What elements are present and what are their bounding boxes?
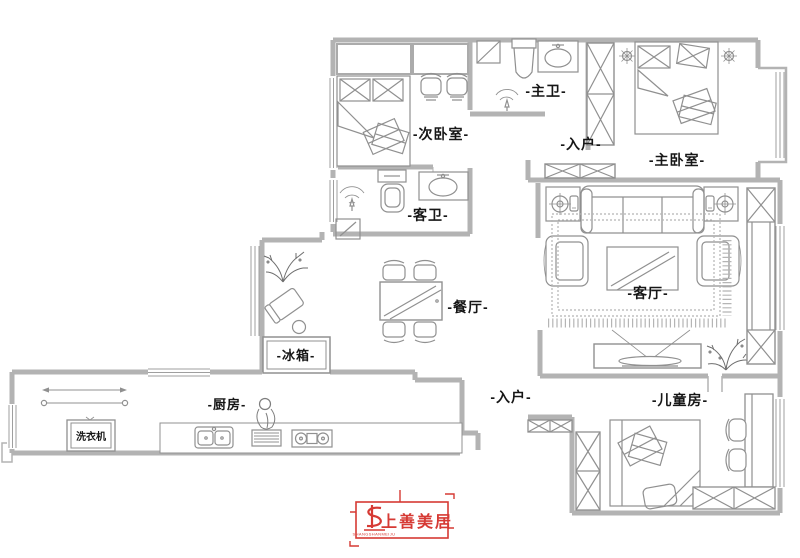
label-entry-upper: -入户- [560,136,601,152]
bedroom2-wardrobes [337,44,468,74]
label-guest-bath: -客卫- [407,207,448,223]
master-bed-icon [635,42,718,134]
sofa-icon [581,186,704,233]
label-washing-machine: 洗衣机 [76,430,106,443]
kids-desk-chairs [726,394,773,487]
logo-subtext: SHANGSHANMEIJU [353,532,396,537]
masterbath-shower-icon [496,89,518,111]
floor-plan-page: -次卧室- -主卫- -入户- -主卧室- -客卫- -餐厅- -客厅- -冰箱… [0,0,800,558]
label-master-bedroom: -主卧室- [649,152,705,168]
kids-bed-icon [610,420,700,510]
label-kitchen: -厨房- [208,397,247,412]
kids-bottom-cabinet [693,487,775,509]
furniture [41,39,775,510]
armchair-right-icon [697,236,741,286]
hall-shoe-cabinet [545,164,615,178]
masterbath-vanity-icon [538,41,578,72]
window-dining-strip [251,246,259,336]
bedroom2-bed-icon [337,76,410,166]
label-secondary-bedroom: -次卧室- [413,126,469,142]
tv-stand-icon [594,330,701,368]
bay-window-wall [758,68,786,162]
label-dining: -餐厅- [447,299,488,315]
window-bay-glass [776,72,784,158]
strip-chair-icon [264,287,305,333]
floor-plan-canvas: -次卧室- -主卫- -入户- -主卧室- -客卫- -餐厅- -客厅- -冰箱… [0,0,800,558]
brand-logo: SHANGSHANMEIJU 上善美居 [350,490,454,546]
label-living: -客厅- [627,285,668,301]
dining-table-icon [380,261,442,343]
armchair-left-icon [544,236,588,286]
masterbath-corner-icon [477,41,500,63]
guestbath-vanity-icon [419,172,468,200]
kids-shoe-cabinet [528,420,572,432]
label-entry-lower: -入户- [490,389,531,405]
guestbath-toilet-icon [378,170,406,212]
kids-door-jambs [708,376,722,392]
kitchen-vent-icon [252,430,281,446]
kids-wardrobe-cabinet [576,432,600,510]
drying-rods-icon [41,387,127,405]
living-plant-icon [707,339,751,370]
coffee-table-icon [607,247,678,290]
stove-icon [292,430,332,447]
living-side-table-right [704,187,738,221]
guestbath-shower-icon [340,187,364,211]
label-kids-room: -儿童房- [652,392,708,408]
living-storage-column [747,188,775,364]
logo-text: 上善美居 [381,512,453,531]
masterbath-toilet-icon [512,39,536,78]
hall-wardrobe-cabinet [587,43,614,145]
label-fridge: -冰箱- [277,348,316,363]
living-side-table-left [546,187,580,221]
bedroom2-desk-chairs [421,74,467,101]
dining-plant-icon [264,252,308,282]
label-master-bath: -主卫- [525,83,566,99]
